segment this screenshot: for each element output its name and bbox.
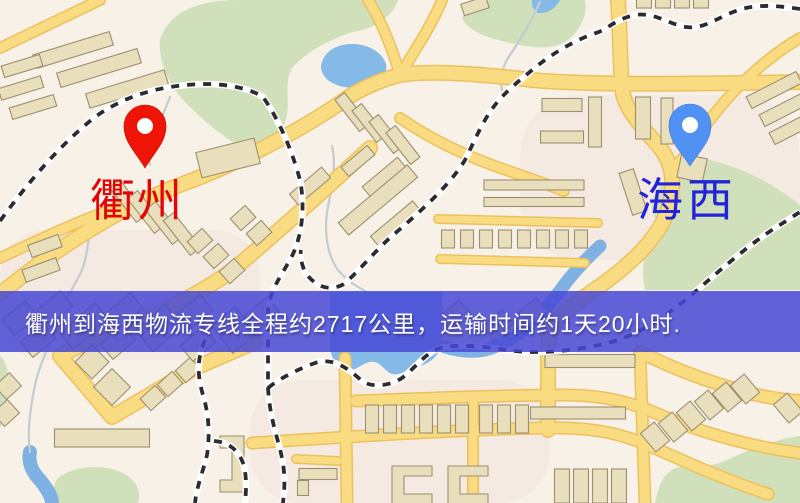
origin-label: 衢州 xyxy=(90,179,184,224)
origin-pin-icon xyxy=(124,105,166,168)
route-info-banner: 衢州到海西物流专线全程约2717公里，运输时间约1天20小时. xyxy=(0,291,800,352)
map-canvas xyxy=(0,0,800,503)
destination-label: 海西 xyxy=(637,178,737,224)
map-screenshot: 衢州 海西 衢州到海西物流专线全程约2717公里，运输时间约1天20小时. xyxy=(0,0,800,503)
route-info-text: 衢州到海西物流专线全程约2717公里，运输时间约1天20小时. xyxy=(0,305,681,339)
